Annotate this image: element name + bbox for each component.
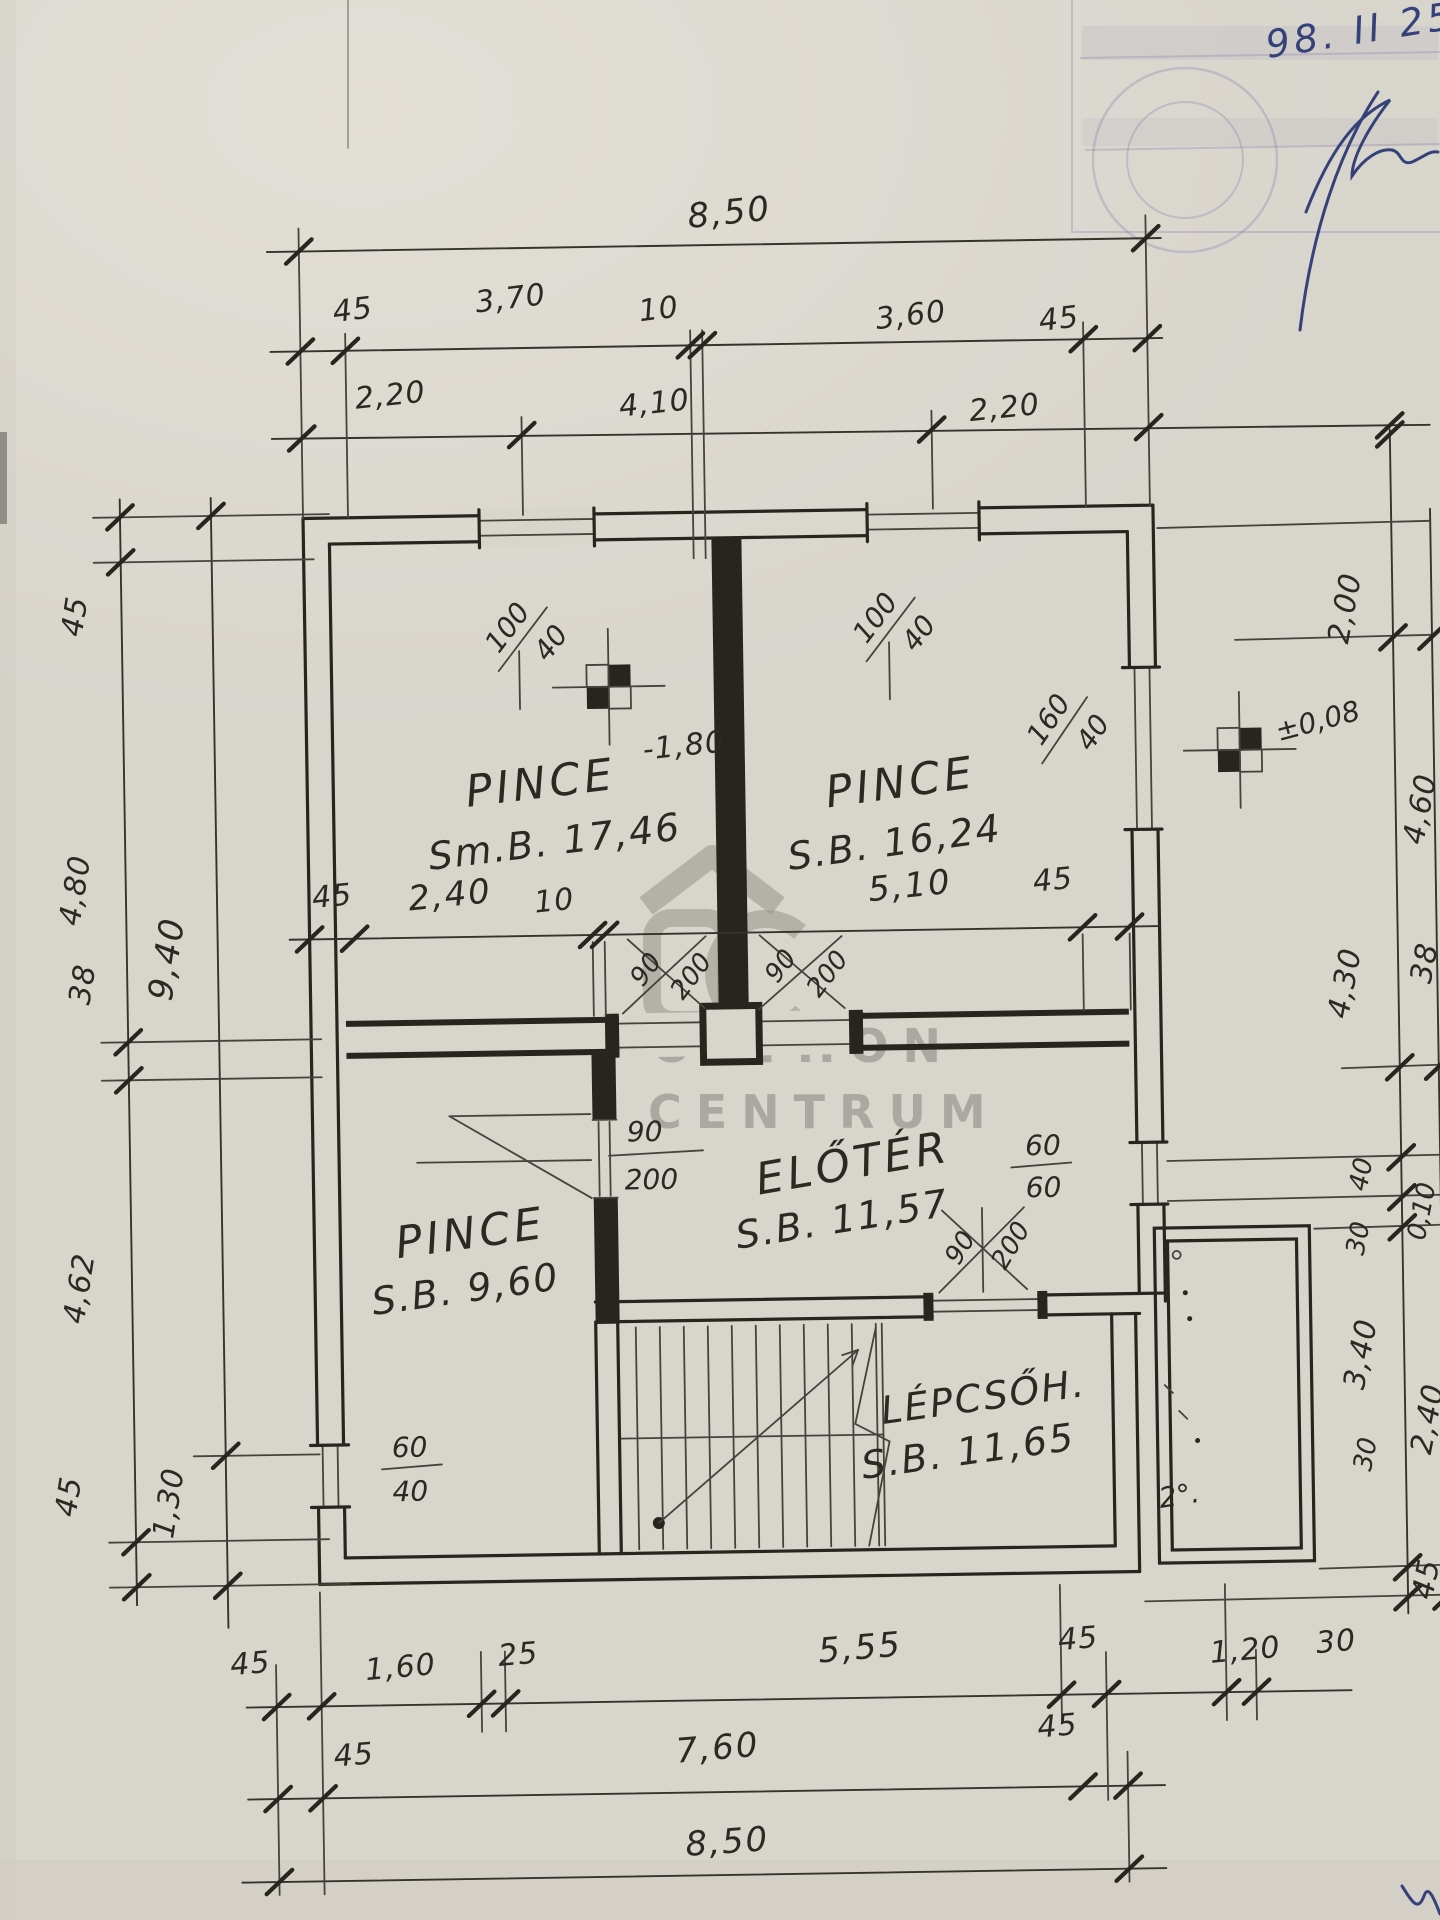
window-label-w: 60: [392, 1431, 428, 1465]
dim: 30: [1315, 1623, 1358, 1661]
dim: 25: [497, 1636, 540, 1674]
dim: 40: [1344, 1155, 1380, 1193]
dim: 4,10: [617, 382, 691, 424]
dim: 45: [332, 1736, 375, 1774]
scan-edge-artifact: [0, 432, 7, 524]
window-label-h: 40: [392, 1475, 428, 1509]
dim: 45: [49, 1474, 90, 1519]
dim: 7,60: [674, 1725, 761, 1772]
dim: 45: [310, 877, 354, 916]
dim: 2,40: [406, 871, 493, 919]
window-label-w: 60: [1025, 1129, 1061, 1163]
dim: 45: [1037, 299, 1081, 339]
dim: 30: [1348, 1435, 1384, 1473]
dim: 45: [331, 290, 375, 330]
dim: 5,10: [866, 862, 953, 910]
dim-top-total: 8,50: [686, 189, 773, 237]
dim: 5,55: [817, 1624, 904, 1671]
dim: 45: [1036, 1707, 1079, 1745]
dim: 1,20: [1208, 1630, 1282, 1671]
door-label-h: 200: [624, 1163, 678, 1197]
scanned-floorplan-sheet: 98. II 25. OTTHON CENTRUM: [0, 0, 1440, 1920]
column: [703, 1005, 760, 1062]
dim: 2,20: [353, 375, 427, 417]
window-label-h: 60: [1026, 1171, 1062, 1205]
floorplan-drawing: 98. II 25. OTTHON CENTRUM: [0, 0, 1440, 1920]
dim: 10: [532, 882, 576, 921]
watermark-line2: CENTRUM: [648, 1085, 1000, 1139]
dim-bottom-total: 8,50: [684, 1819, 770, 1865]
dim: 38: [62, 962, 103, 1007]
dim: 1,60: [364, 1647, 438, 1688]
dim-clipped: 38: [1404, 940, 1440, 986]
dim: 30: [1341, 1219, 1377, 1257]
dim: 10: [637, 290, 681, 330]
door-label-w: 90: [627, 1115, 663, 1149]
dim: 45: [55, 594, 96, 639]
dim: 45: [229, 1645, 272, 1683]
terrace-mark: 2°.: [1156, 1476, 1201, 1515]
dim: 45: [1031, 861, 1075, 900]
dim: 2,20: [968, 387, 1042, 429]
dim: 45: [1057, 1620, 1100, 1658]
